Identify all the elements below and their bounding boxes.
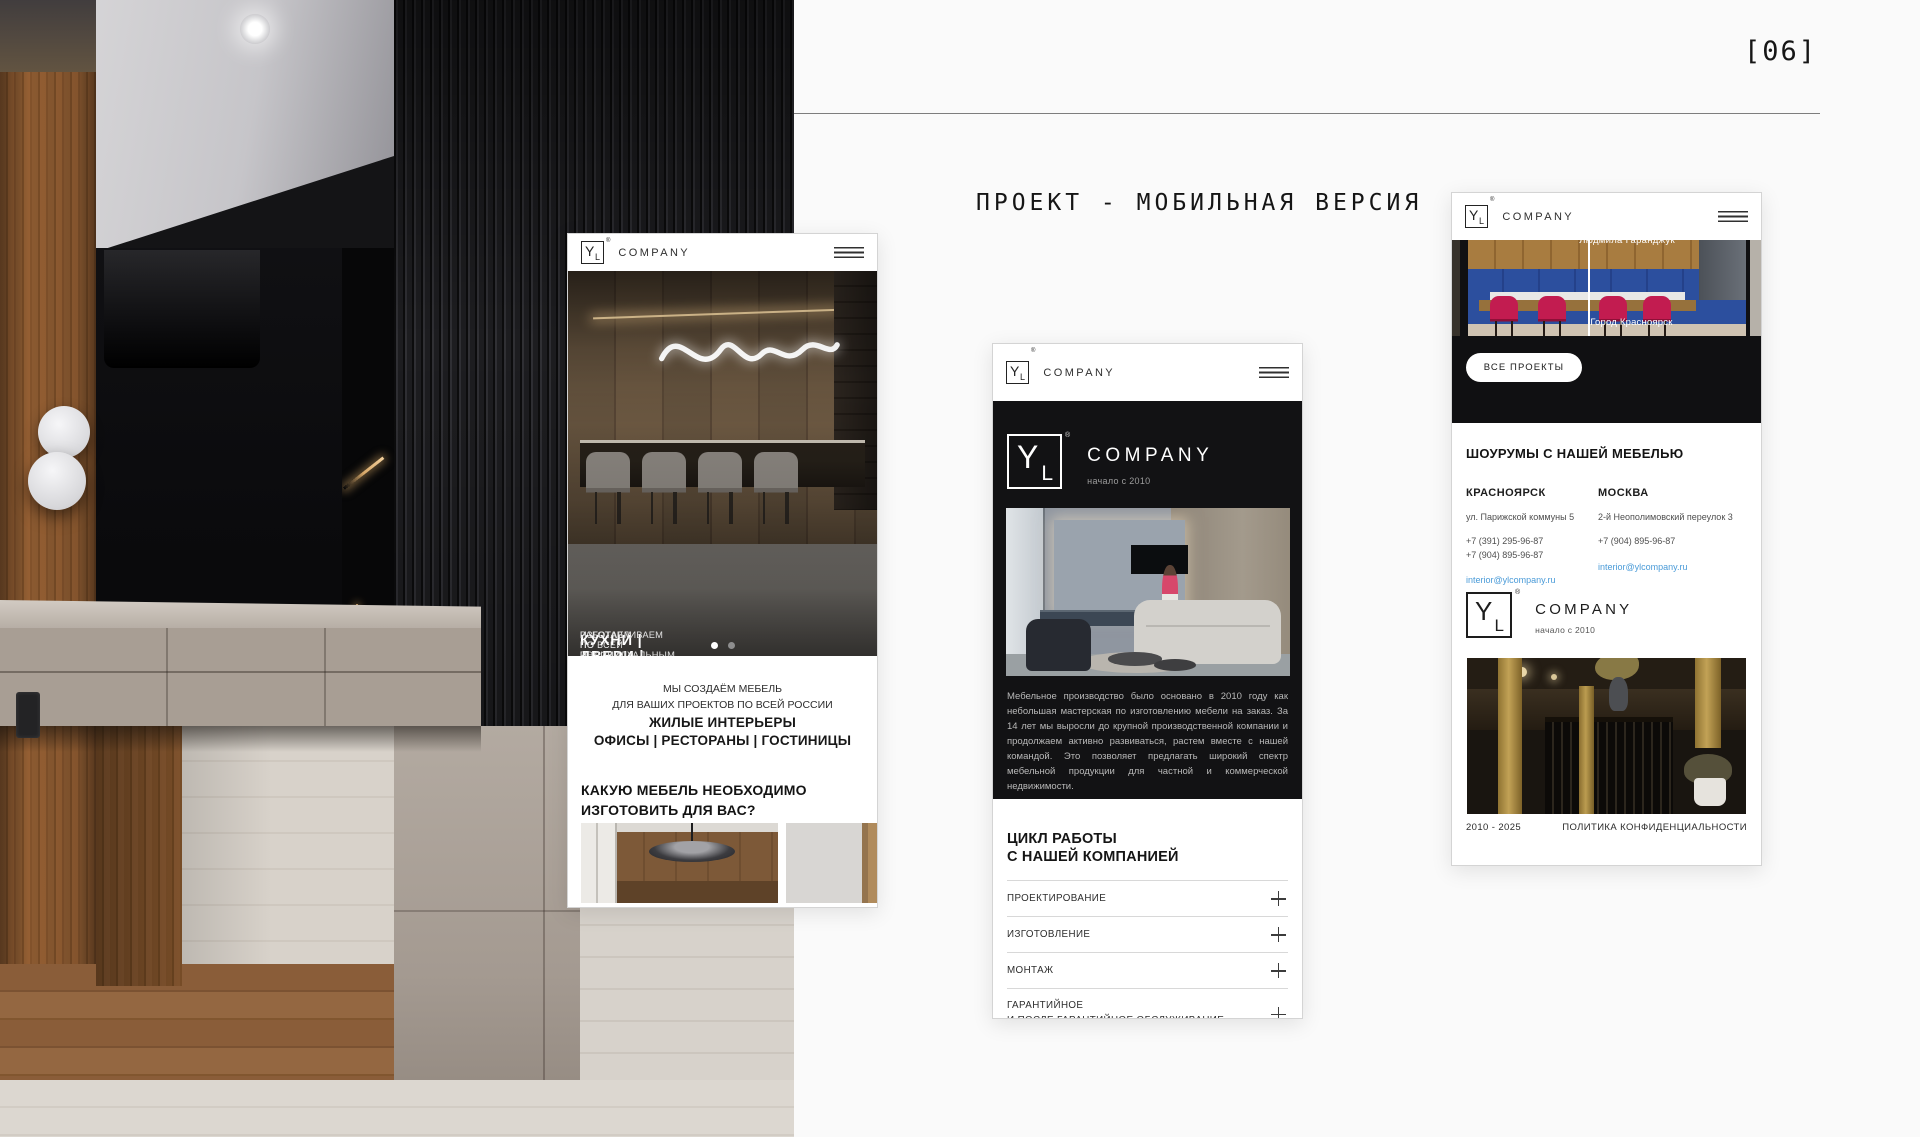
photo-wall-lamp [28, 452, 86, 510]
logo-letter-l: L [1479, 217, 1484, 226]
privacy-policy-link[interactable]: ПОЛИТИКА КОНФИДЕНЦИАЛЬНОСТИ [1562, 822, 1747, 833]
carousel-dot[interactable] [728, 642, 735, 649]
mobile-mockup-home: Y L ® COMPANY РАБОТАЕМ ПО ВСЕЙ РОССИИ КУ… [567, 233, 878, 908]
gold-bar [1695, 658, 1721, 748]
brand-name: COMPANY [1535, 601, 1632, 618]
carousel-dots [568, 642, 877, 649]
accordion-item-production[interactable]: ИЗГОТОВЛЕНИЕ [1007, 916, 1288, 952]
accordion-label: МОНТАЖ [1007, 964, 1054, 979]
yl-logo-icon[interactable]: Y L [581, 241, 604, 264]
showroom-address: 2-й Неополимовский переулок 3 [1598, 511, 1747, 524]
showroom-phone[interactable]: +7 (904) 895-96-87 [1598, 535, 1747, 549]
plant-pot [1694, 778, 1726, 806]
question-heading: КАКУЮ МЕБЕЛЬ НЕОБХОДИМО ИЗГОТОВИТЬ ДЛЯ В… [581, 780, 807, 821]
page-index: [06] [1744, 36, 1817, 67]
red-chair [1538, 296, 1566, 336]
showroom-city: КРАСНОЯРСК [1466, 487, 1598, 499]
photo-air-conditioner [104, 250, 260, 368]
logo-letter-l: L [595, 253, 600, 262]
accordion-item-installation[interactable]: МОНТАЖ [1007, 952, 1288, 988]
logo-letter-y: Y [1469, 208, 1478, 222]
photo-spotlight [240, 14, 270, 44]
showroom-phones: +7 (391) 295-96-87 +7 (904) 895-96-87 [1466, 535, 1598, 563]
footer-years: 2010 - 2025 [1466, 822, 1521, 833]
black-rails [1545, 717, 1673, 814]
carousel-next-sliver[interactable] [1750, 240, 1761, 336]
menu-icon[interactable] [1718, 211, 1748, 222]
showroom-moscow: МОСКВА 2-й Неополимовский переулок 3 +7 … [1598, 487, 1747, 588]
accordion-item-design[interactable]: ПРОЕКТИРОВАНИЕ [1007, 880, 1288, 916]
accordion-label: ГАРАНТИЙНОЕ И ПОСЛЕ ГАРАНТИЙНОЕ ОБСЛУЖИВ… [1007, 999, 1224, 1019]
all-projects-button[interactable]: ВСЕ ПРОЕКТЫ [1466, 353, 1582, 382]
menu-icon[interactable] [834, 247, 864, 258]
mobile-header: Y L ® COMPANY [568, 234, 877, 271]
compare-slider-line[interactable] [1588, 240, 1590, 336]
pendant-cord [691, 823, 693, 843]
kitchen-appliances [1699, 240, 1746, 300]
accordion-label-line: ИЗГОТОВЛЕНИЕ [1007, 928, 1090, 943]
registered-mark: ® [606, 238, 610, 244]
plus-icon[interactable] [1271, 891, 1286, 906]
showroom-phone[interactable]: +7 (904) 895-96-87 [1466, 549, 1598, 563]
showrooms-title: ШОУРУМЫ С НАШЕЙ МЕБЕЛЬЮ [1466, 446, 1747, 461]
showroom-city: МОСКВА [1598, 487, 1747, 499]
accordion-label-line: И ПОСЛЕ ГАРАНТИЙНОЕ ОБСЛУЖИВАНИЕ [1007, 1014, 1224, 1019]
yl-logo-icon: Y L [1007, 434, 1062, 489]
photo-beige-cabinet [394, 726, 580, 1080]
mobile-header: Y L ® COMPANY [993, 344, 1302, 401]
red-chair [1643, 296, 1671, 336]
kitchen-lower-cabinets [615, 881, 778, 903]
tv-screen [1131, 545, 1188, 574]
logo-letter-l: L [1495, 617, 1504, 634]
brand-since: начало с 2010 [1535, 625, 1632, 635]
projects-section: Людмила Гаранджук Город Красноярск ВСЕ П… [1452, 240, 1761, 423]
photo-light-switch [16, 692, 40, 738]
accordion-label-line: ПРОЕКТИРОВАНИЕ [1007, 892, 1106, 907]
company-logo-block: Y L ® COMPANY начало с 2010 [1466, 592, 1632, 638]
livingroom-armchair [1026, 619, 1091, 671]
logo-letter-y: Y [1010, 364, 1019, 378]
menu-icon[interactable] [1259, 367, 1289, 378]
logo-letter-y: Y [1475, 598, 1492, 624]
photo-wall-lamp [38, 406, 90, 458]
bust-sculpture [1609, 677, 1628, 711]
showroom-address: ул. Парижской коммуны 5 [1466, 511, 1598, 524]
yl-logo-icon[interactable]: Y L [1006, 361, 1029, 384]
about-photo-livingroom [1006, 508, 1290, 676]
presentation-slide: [06] ПРОЕКТ - МОБИЛЬНАЯ ВЕРСИЯ Y L ® COM… [0, 0, 1920, 1137]
logo-caption: COMPANY начало с 2010 [1087, 434, 1213, 489]
coffee-table [1154, 659, 1197, 671]
accordion-label-line: ГАРАНТИЙНОЕ [1007, 999, 1224, 1014]
brand-name: COMPANY [1043, 367, 1115, 379]
company-logo-block: Y L ® COMPANY начало с 2010 [1007, 434, 1213, 489]
showroom-email-link[interactable]: interior@ylcompany.ru [1466, 575, 1556, 585]
question-line: КАКУЮ МЕБЕЛЬ НЕОБХОДИМО [581, 780, 807, 800]
brand-name: COMPANY [618, 247, 690, 259]
showroom-email-link[interactable]: interior@ylcompany.ru [1598, 562, 1688, 572]
mobile-mockup-about: Y L ® COMPANY Y L ® COMPANY начало с 201… [992, 343, 1303, 1019]
project-author-caption: Людмила Гаранджук [1579, 240, 1675, 246]
pendant-lamp [649, 841, 735, 862]
furniture-photo-next[interactable] [786, 823, 877, 903]
gold-bar [1498, 658, 1522, 814]
registered-mark: ® [1065, 432, 1070, 489]
work-cycle-title-line: ЦИКЛ РАБОТЫ [1007, 831, 1288, 849]
red-chair [1599, 296, 1627, 336]
work-cycle-title: ЦИКЛ РАБОТЫ С НАШЕЙ КОМПАНИЕЙ [1007, 831, 1288, 866]
hero-banner[interactable]: РАБОТАЕМ ПО ВСЕЙ РОССИИ КУХНИ | ДВЕРИ | … [568, 271, 877, 656]
gold-bar [1579, 686, 1594, 814]
logo-caption: COMPANY начало с 2010 [1535, 592, 1632, 638]
logo-letter-y: Y [585, 244, 594, 258]
brand-name: COMPANY [1502, 211, 1574, 223]
photo-console-drawers [0, 628, 481, 726]
kitchen-window [581, 823, 617, 903]
registered-mark: ® [1490, 197, 1494, 203]
footer-photo-gold-slats [1467, 658, 1746, 814]
intro-text-block: МЫ СОЗДАЁМ МЕБЕЛЬ ДЛЯ ВАШИХ ПРОЕКТОВ ПО … [568, 682, 877, 751]
accordion-label: ИЗГОТОВЛЕНИЕ [1007, 928, 1090, 943]
registered-mark: ® [1031, 348, 1035, 354]
accordion-item-warranty[interactable]: ГАРАНТИЙНОЕ И ПОСЛЕ ГАРАНТИЙНОЕ ОБСЛУЖИВ… [1007, 988, 1288, 1019]
showroom-phone[interactable]: +7 (391) 295-96-87 [1466, 535, 1598, 549]
logo-letter-l: L [1020, 373, 1025, 382]
plus-icon[interactable] [1271, 1007, 1286, 1019]
section-title: ПРОЕКТ - МОБИЛЬНАЯ ВЕРСИЯ [976, 190, 1422, 216]
showrooms-columns: КРАСНОЯРСК ул. Парижской коммуны 5 +7 (3… [1466, 487, 1747, 588]
photo-wood-column [96, 726, 182, 986]
intro-line-bold: ЖИЛЫЕ ИНТЕРЬЕРЫ [568, 714, 877, 733]
photo-console-shadow [0, 726, 481, 752]
mobile-mockup-contacts: Y L ® COMPANY [1451, 192, 1762, 866]
plus-icon[interactable] [1271, 963, 1286, 978]
hero-shade-overlay [568, 271, 877, 656]
project-city-caption: Город Красноярск [1590, 317, 1672, 328]
showroom-phones: +7 (904) 895-96-87 [1598, 535, 1747, 549]
accordion-label-line: МОНТАЖ [1007, 964, 1054, 979]
accordion-label: ПРОЕКТИРОВАНИЕ [1007, 892, 1106, 907]
showrooms-section: ШОУРУМЫ С НАШЕЙ МЕБЕЛЬЮ КРАСНОЯРСК ул. П… [1466, 446, 1747, 588]
intro-line: МЫ СОЗДАЁМ МЕБЕЛЬ [568, 682, 877, 698]
intro-line-bold: ОФИСЫ | РЕСТОРАНЫ | ГОСТИНИЦЫ [568, 732, 877, 751]
question-line: ИЗГОТОВИТЬ ДЛЯ ВАС? [581, 800, 807, 820]
project-photo-kitchen[interactable]: Людмила Гаранджук Город Красноярск [1468, 240, 1746, 336]
mobile-footer: 2010 - 2025 ПОЛИТИКА КОНФИДЕНЦИАЛЬНОСТИ [1466, 822, 1747, 833]
plus-icon[interactable] [1271, 927, 1286, 942]
red-chair [1490, 296, 1518, 336]
furniture-carousel [581, 823, 877, 903]
header-divider [794, 113, 1820, 114]
brand-name: COMPANY [1087, 445, 1213, 467]
project-carousel: Людмила Гаранджук Город Красноярск [1452, 240, 1761, 336]
intro-line: ДЛЯ ВАШИХ ПРОЕКТОВ ПО ВСЕЙ РОССИИ [568, 698, 877, 714]
logo-letter-l: L [1041, 463, 1053, 484]
work-cycle-section: ЦИКЛ РАБОТЫ С НАШЕЙ КОМПАНИЕЙ ПРОЕКТИРОВ… [1007, 831, 1288, 1019]
yl-logo-icon: Y L [1466, 592, 1512, 638]
registered-mark: ® [1515, 589, 1520, 638]
furniture-photo-kitchen[interactable] [581, 823, 778, 903]
about-section: Y L ® COMPANY начало с 2010 [993, 401, 1302, 799]
warm-light [1551, 674, 1557, 680]
yl-logo-icon[interactable]: Y L [1465, 205, 1488, 228]
carousel-dot-active[interactable] [711, 642, 718, 649]
showroom-krasnoyarsk: КРАСНОЯРСК ул. Парижской коммуны 5 +7 (3… [1466, 487, 1598, 588]
logo-letter-y: Y [1017, 441, 1038, 473]
brand-since: начало с 2010 [1087, 476, 1213, 486]
work-cycle-title-line: С НАШЕЙ КОМПАНИЕЙ [1007, 849, 1288, 867]
photo-bottom-floor [0, 1080, 794, 1137]
carousel-prev-sliver[interactable] [1452, 240, 1460, 336]
about-paragraph: Мебельное производство было основано в 2… [1007, 689, 1288, 794]
mobile-header: Y L ® COMPANY [1452, 193, 1761, 240]
